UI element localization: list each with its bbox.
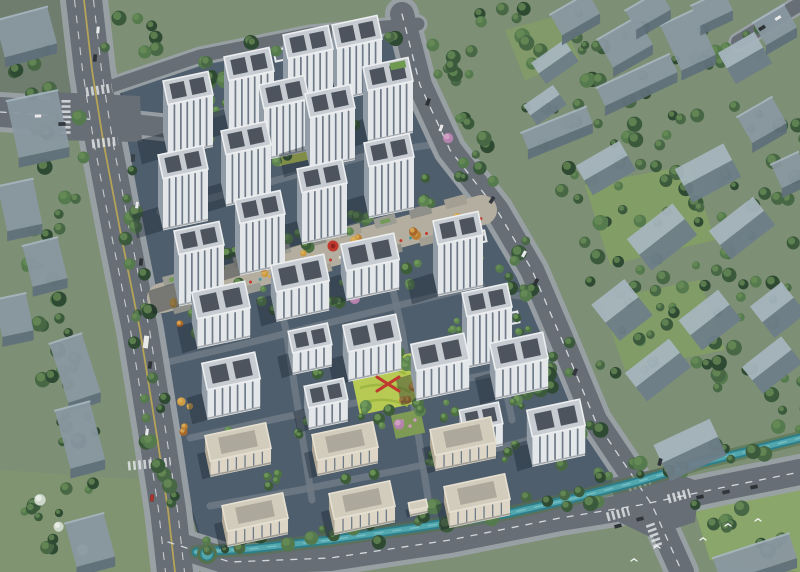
roof-panels (189, 77, 207, 95)
tree-highlight (301, 250, 305, 254)
tree-highlight (373, 536, 381, 544)
tree-highlight (662, 319, 669, 326)
roof-panels (350, 325, 370, 345)
tree-highlight (129, 337, 136, 344)
tree-highlight (459, 158, 465, 164)
roof-panels (230, 57, 248, 75)
tree-highlight (43, 83, 51, 91)
tree-highlight (306, 532, 314, 540)
tree-highlight (661, 175, 668, 182)
tree-highlight (265, 482, 270, 487)
tree-highlight (513, 246, 522, 255)
tree-highlight (157, 405, 162, 410)
tree-highlight (560, 491, 566, 497)
tree-highlight (696, 204, 701, 209)
tree-highlight (456, 327, 460, 331)
roof-panels (371, 239, 391, 259)
tree-highlight (556, 185, 563, 192)
roof-panels (418, 344, 438, 364)
tree-highlight (788, 237, 795, 244)
tree-highlight (693, 262, 697, 266)
roof-panels (261, 196, 279, 214)
tree-highlight (140, 46, 147, 53)
tree-highlight (362, 407, 366, 411)
tree-highlight (370, 470, 376, 476)
tree-highlight (33, 317, 42, 326)
tree-highlight (669, 308, 675, 314)
tree-highlight (772, 420, 780, 428)
awning-dot (329, 258, 332, 261)
car (93, 54, 97, 61)
tree-highlight (581, 74, 589, 82)
tree-highlight (422, 174, 427, 179)
tree-highlight (55, 522, 61, 528)
tree-highlight (113, 12, 121, 20)
roof-panels (209, 363, 229, 383)
car (131, 154, 135, 161)
garden-flower (408, 424, 411, 427)
roof-panels (184, 151, 202, 169)
tree-highlight (88, 478, 95, 485)
tree-highlight (150, 32, 157, 39)
tree-highlight (727, 455, 732, 460)
tree-highlight (414, 260, 418, 264)
tree-highlight (535, 44, 543, 52)
tree-highlight (712, 356, 721, 365)
tree-highlight (575, 487, 581, 493)
tree-highlight (358, 414, 362, 418)
tree-highlight (417, 406, 422, 411)
roof-panels (390, 139, 408, 157)
tree-highlight (779, 406, 784, 411)
tree-highlight (36, 373, 45, 382)
tree-highlight (657, 303, 662, 308)
tree-cluster (54, 522, 64, 532)
roof-panels (369, 67, 387, 85)
tree-highlight (584, 497, 593, 506)
tree-highlight (677, 282, 684, 289)
awning-dot (409, 236, 412, 239)
car (139, 258, 143, 265)
roof-panels (289, 35, 307, 53)
roof-panels (520, 338, 540, 358)
tree-highlight (444, 400, 447, 403)
tree-highlight (21, 508, 26, 513)
tree-highlight (596, 473, 602, 479)
tree-highlight (419, 196, 425, 202)
tree-highlight (374, 414, 381, 421)
tree-highlight (502, 457, 505, 460)
tree-highlight (64, 329, 69, 334)
tree-highlight (630, 133, 638, 141)
tree-highlight (451, 407, 456, 412)
tree-highlight (525, 326, 529, 330)
tree-highlight (637, 471, 641, 475)
tree-highlight (796, 426, 800, 430)
tree-highlight (464, 118, 471, 125)
tree-highlight (594, 216, 603, 225)
tree-highlight (615, 182, 620, 187)
tree-highlight (143, 305, 152, 314)
tree-highlight (35, 495, 41, 501)
tree-highlight (282, 538, 290, 546)
awning-dot (425, 232, 428, 235)
tree-highlight (261, 286, 264, 289)
tree-highlight (264, 473, 269, 478)
roof-panels (303, 169, 321, 187)
tree-highlight (522, 492, 528, 498)
tree-highlight (474, 162, 481, 169)
tree-highlight (565, 369, 570, 374)
tree-highlight (404, 356, 409, 361)
car (96, 26, 100, 33)
tree-highlight (148, 373, 154, 379)
awning-dot (399, 239, 402, 242)
roof-panels (199, 292, 219, 312)
roof-panels (439, 221, 457, 239)
tree-highlight (202, 57, 208, 63)
tree-highlight (767, 277, 775, 285)
scene-svg (0, 0, 800, 572)
tree-highlight (427, 500, 436, 509)
tree-highlight (518, 3, 526, 11)
awning-dot (268, 275, 271, 278)
tree-highlight (428, 40, 435, 47)
tree-highlight (160, 394, 166, 400)
tree-highlight (772, 193, 779, 200)
roof-panels (370, 143, 388, 161)
tree-highlight (634, 457, 642, 465)
tree-highlight (147, 21, 153, 27)
tree-highlight (139, 269, 146, 276)
tree-highlight (692, 357, 699, 364)
roof-panels (373, 320, 393, 340)
roof-panels (497, 343, 517, 363)
tree-highlight (658, 271, 666, 279)
tree-highlight (163, 479, 172, 488)
tree-highlight (619, 206, 624, 211)
tree-cluster (394, 419, 404, 429)
tree-highlight (73, 111, 81, 119)
aerial-masterplan-render (0, 0, 800, 572)
tree-highlight (513, 314, 518, 319)
tree-highlight (634, 333, 641, 340)
tree-highlight (594, 74, 602, 82)
tree-highlight (712, 265, 718, 271)
roof-panels (169, 81, 187, 99)
tree-highlight (792, 119, 800, 127)
tree-highlight (504, 448, 509, 453)
tree-highlight (447, 51, 455, 59)
tree-highlight (142, 414, 147, 419)
tree-highlight (346, 228, 351, 233)
tree-highlight (669, 111, 675, 117)
tree-highlight (543, 496, 549, 502)
tree-highlight (596, 361, 601, 366)
tree-highlight (141, 395, 146, 400)
tree-highlight (614, 257, 620, 263)
tree-highlight (700, 281, 706, 287)
tree-highlight (586, 277, 592, 283)
car (148, 361, 152, 368)
tree-highlight (178, 398, 183, 403)
tree-highlight (630, 281, 637, 288)
tree-highlight (203, 537, 208, 542)
roof-panels (358, 21, 376, 39)
tree-highlight (651, 286, 657, 292)
tree-highlight (714, 384, 719, 389)
tree-highlight (737, 293, 742, 298)
tree-highlight (61, 483, 68, 490)
tree-highlight (663, 131, 668, 136)
roof-panels (323, 165, 341, 183)
tree-highlight (636, 266, 641, 271)
tree-highlight (444, 134, 450, 140)
roof-panels (180, 231, 198, 249)
tree-highlight (41, 542, 48, 549)
tree-highlight (53, 293, 61, 301)
tree-highlight (751, 277, 757, 283)
tree-highlight (132, 313, 137, 318)
car (145, 428, 149, 435)
tree-highlight (513, 14, 519, 20)
tree-highlight (27, 504, 33, 510)
tree-highlight (151, 43, 159, 51)
tree-highlight (385, 33, 391, 39)
tree-highlight (574, 195, 579, 200)
tree-highlight (635, 216, 642, 223)
tree-highlight (434, 70, 439, 75)
tree-highlight (478, 132, 486, 140)
tree-highlight (511, 257, 517, 263)
tree-highlight (731, 182, 736, 187)
tree-highlight (125, 259, 131, 265)
tree-highlight (319, 526, 324, 531)
roof-panels (247, 127, 265, 145)
tree-highlight (273, 477, 277, 481)
tree-highlight (723, 269, 731, 277)
tree-highlight (760, 188, 767, 195)
tree-highlight (692, 110, 700, 118)
tree-highlight (520, 36, 529, 45)
tree-highlight (489, 176, 495, 182)
tree-highlight (461, 174, 466, 179)
tree-highlight (594, 120, 599, 125)
tree-highlight (204, 547, 209, 552)
tree-highlight (59, 191, 67, 199)
roof-panels (534, 410, 554, 430)
tree-highlight (441, 414, 445, 418)
tree-highlight (272, 46, 278, 52)
roof-panels (265, 85, 283, 103)
roof-panels (241, 200, 259, 218)
tree-highlight (177, 321, 181, 325)
roof-panels (331, 90, 349, 108)
tree-highlight (42, 230, 49, 237)
tree-highlight (475, 9, 481, 15)
tree-highlight (586, 421, 591, 426)
tree-highlight (71, 194, 77, 200)
roof-panels (311, 94, 329, 112)
roof-panels (309, 31, 327, 49)
roof-panels (285, 81, 303, 99)
tree-highlight (510, 399, 514, 403)
tree-highlight (447, 61, 454, 68)
tree-highlight (79, 152, 86, 159)
tree-highlight (563, 162, 571, 170)
tree-highlight (691, 500, 697, 506)
tree-highlight (55, 210, 60, 215)
awning-dot (259, 278, 262, 281)
roof-panels (488, 289, 506, 307)
tree-highlight (735, 502, 744, 511)
tree-highlight (611, 368, 617, 374)
tree-highlight (101, 43, 106, 48)
tree-highlight (472, 151, 477, 156)
tree-highlight (574, 100, 580, 106)
roof-panels (338, 25, 356, 43)
tree-highlight (249, 38, 255, 44)
roof-panels (441, 339, 461, 359)
tree-highlight (497, 4, 504, 11)
roof-panels (557, 405, 577, 425)
tree-highlight (592, 250, 600, 258)
tree-highlight (274, 470, 279, 475)
tree-highlight (182, 424, 186, 428)
tree-highlight (361, 401, 368, 408)
tree-highlight (628, 118, 636, 126)
tree-highlight (120, 233, 128, 241)
tree-highlight (123, 195, 128, 200)
car (150, 494, 154, 501)
tree-highlight (55, 224, 61, 230)
roof-panels (348, 244, 368, 264)
tree-highlight (594, 423, 603, 432)
tree-highlight (385, 405, 391, 411)
tree-highlight (49, 535, 55, 541)
tree-highlight (647, 331, 652, 336)
tree-highlight (520, 285, 525, 290)
tree-highlight (450, 326, 454, 330)
car (34, 114, 41, 118)
tree-highlight (35, 513, 40, 518)
tree-highlight (133, 14, 139, 20)
tree-highlight (395, 420, 401, 426)
tree-highlight (743, 31, 748, 36)
tree-highlight (563, 502, 569, 508)
tree-highlight (55, 314, 61, 320)
street-red-feature-center (331, 244, 336, 249)
tree-highlight (454, 318, 457, 321)
roof-panels (278, 265, 298, 285)
tree-highlight (708, 519, 715, 526)
tree-highlight (47, 371, 54, 378)
roof-panels (222, 287, 242, 307)
tree-cluster (34, 494, 45, 505)
tree-highlight (56, 510, 61, 515)
tree-highlight (592, 42, 598, 48)
tree-highlight (695, 218, 700, 223)
tree-highlight (651, 161, 658, 168)
car (58, 122, 65, 126)
tree-highlight (655, 140, 661, 146)
tree-highlight (582, 42, 587, 47)
tree-highlight (703, 360, 709, 366)
tree-highlight (379, 423, 383, 427)
tree-highlight (521, 290, 528, 297)
tree-highlight (728, 341, 737, 350)
tree-highlight (516, 329, 520, 333)
tree-highlight (341, 474, 347, 480)
tree-highlight (410, 228, 415, 233)
tree-highlight (152, 459, 160, 467)
tree-highlight (505, 273, 510, 278)
roof-panels (301, 260, 321, 280)
tree-highlight (144, 435, 152, 443)
roof-panels (250, 53, 268, 71)
tree-highlight (477, 17, 483, 23)
tree-highlight (730, 102, 736, 108)
roof-panels (232, 358, 252, 378)
tree-highlight (739, 280, 745, 286)
tree-cluster (443, 133, 453, 143)
awning-dot (249, 280, 252, 283)
tree-highlight (522, 237, 527, 242)
car (135, 201, 139, 208)
tree-highlight (580, 238, 586, 244)
tree-highlight (636, 160, 642, 166)
garden-flower (413, 418, 416, 421)
tree-highlight (466, 71, 471, 76)
roof-panels (164, 155, 182, 173)
roof-panels (468, 293, 486, 311)
tree-highlight (128, 166, 133, 171)
tree-highlight (747, 445, 755, 453)
tree-highlight (565, 338, 571, 344)
tree-highlight (318, 371, 321, 374)
tree-highlight (676, 114, 682, 120)
tree-highlight (456, 115, 461, 120)
tree-highlight (214, 107, 218, 111)
tree-highlight (718, 213, 724, 219)
roof-panels (200, 227, 218, 245)
roof-panels (227, 131, 245, 149)
tree-highlight (496, 265, 501, 270)
tree-highlight (467, 46, 474, 53)
roof-panels (459, 217, 477, 235)
tree-highlight (402, 264, 408, 270)
tree-highlight (549, 352, 555, 358)
